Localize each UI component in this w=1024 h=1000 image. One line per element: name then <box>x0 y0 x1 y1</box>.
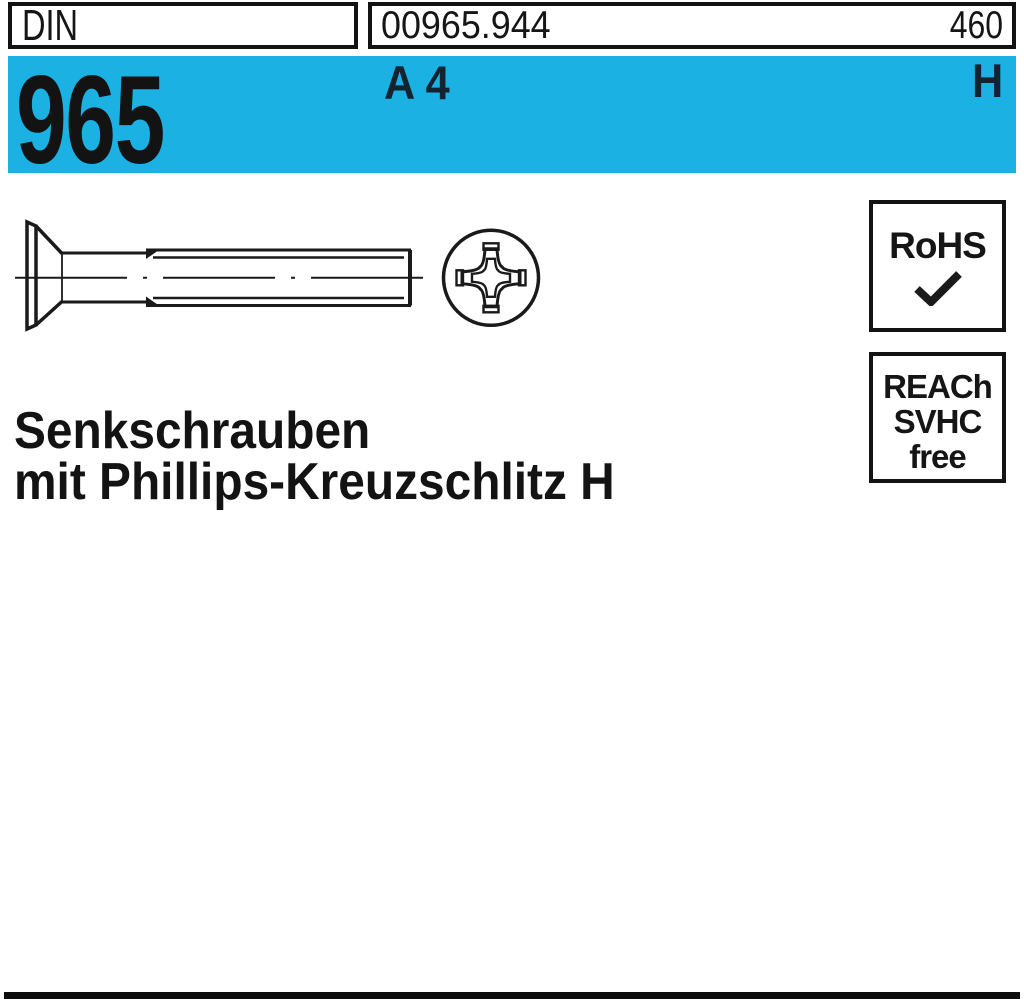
rohs-label: RoHS <box>873 227 1002 264</box>
drive-symbol: H <box>972 57 1003 104</box>
din-standard-box: DIN <box>8 2 358 49</box>
din-label: DIN <box>22 7 78 45</box>
catalog-page-number: 460 <box>950 7 1003 45</box>
phillips-recess-icon <box>457 243 526 312</box>
article-number: 00965.944 <box>381 7 551 45</box>
reach-line-1: REACh <box>873 369 1002 404</box>
footer-rule <box>4 992 1020 999</box>
standard-number: 965 <box>16 58 164 183</box>
article-number-box: 00965.944 460 <box>368 2 1016 49</box>
product-card: DIN 00965.944 460 965 A 4 H <box>0 0 1024 1000</box>
reach-badge: REACh SVHC free <box>869 352 1006 483</box>
material-grade: A 4 <box>384 59 450 106</box>
product-title-line-1: Senkschrauben <box>14 406 370 456</box>
reach-line-3: free <box>873 439 1002 474</box>
product-title-line-2: mit Phillips-Kreuzschlitz H <box>14 457 615 507</box>
rohs-badge: RoHS <box>869 200 1006 332</box>
reach-line-2: SVHC <box>873 404 1002 439</box>
screw-technical-drawing <box>0 205 560 355</box>
screw-head-view <box>444 230 539 325</box>
screw-side-view <box>15 222 428 329</box>
checkmark-icon <box>911 270 965 306</box>
